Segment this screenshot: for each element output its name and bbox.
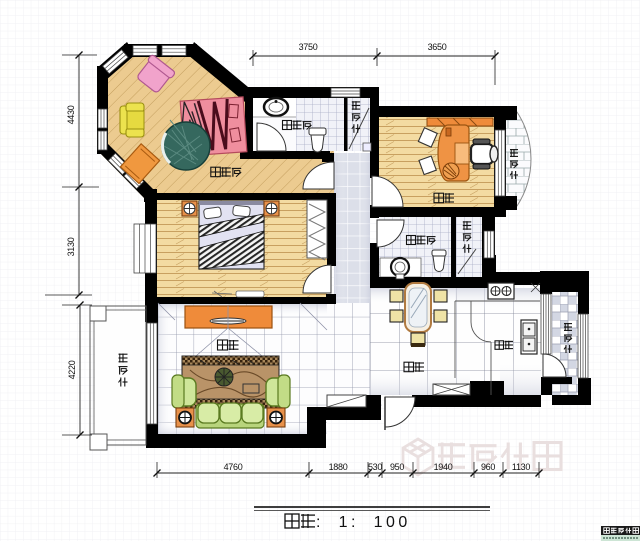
svg-text:3130: 3130 [66,237,76,256]
svg-text:4220: 4220 [67,360,77,379]
svg-text:4430: 4430 [66,105,76,124]
svg-text:960: 960 [481,462,495,472]
svg-text:3750: 3750 [299,42,318,52]
svg-text:1130: 1130 [512,462,530,472]
svg-text:1940: 1940 [434,462,453,472]
svg-text:: 1: 100: : 1: 100 [316,514,411,531]
svg-text:4760: 4760 [224,462,243,472]
svg-text:530: 530 [368,462,382,472]
svg-text:1880: 1880 [329,462,348,472]
svg-text:950: 950 [390,462,404,472]
svg-text:3650: 3650 [428,42,447,52]
